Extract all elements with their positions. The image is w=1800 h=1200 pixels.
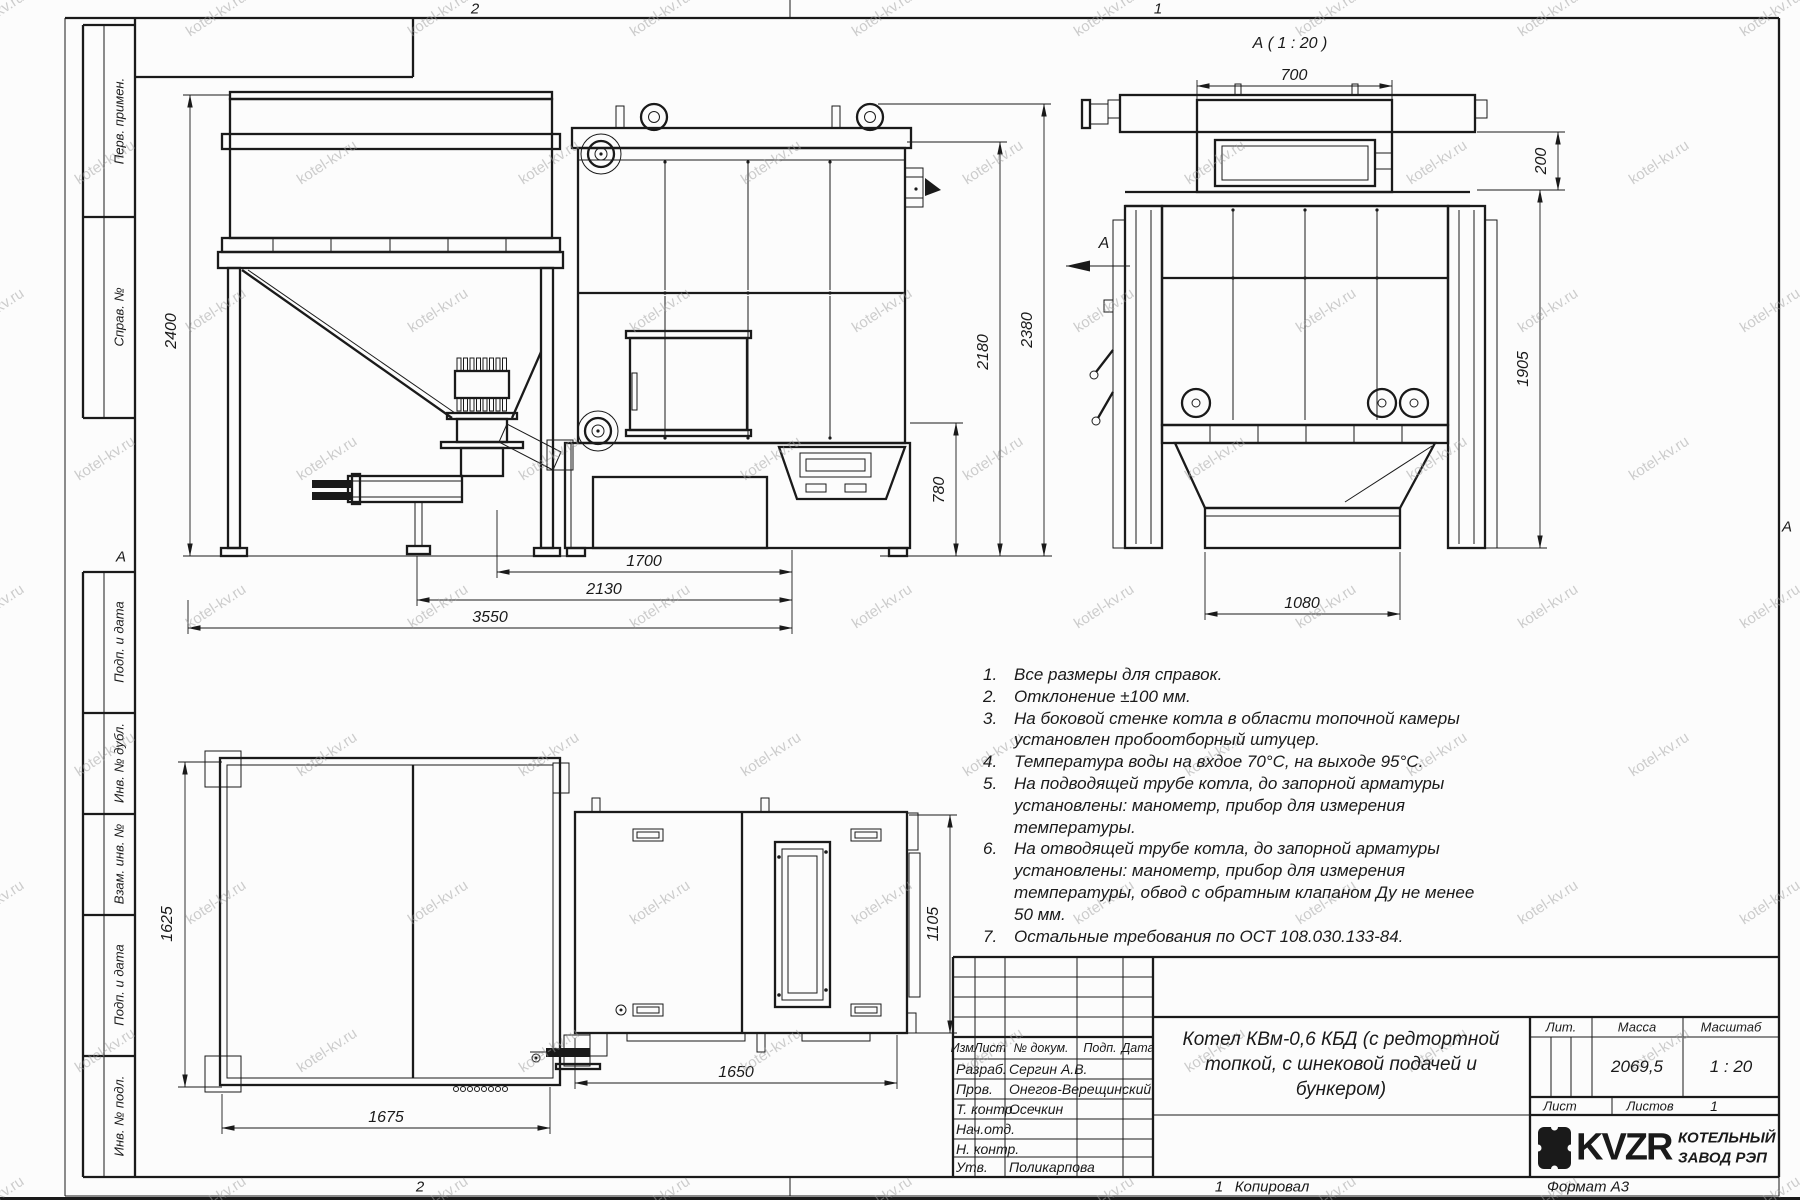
zone-letter-right: А (1782, 519, 1792, 536)
role-prov: Пров. (956, 1081, 993, 1097)
note-item: 2.Отклонение ±100 мм. (983, 686, 1475, 708)
note-number: 4. (983, 751, 1014, 773)
sheet-label: Лист (1543, 1099, 1576, 1114)
note-number: 5. (983, 773, 1014, 838)
note-text: На боковой стенке котла в области топочн… (1014, 708, 1475, 752)
note-item: 5.На подводящей трубе котла, до запорной… (983, 773, 1475, 838)
mass-value: 2069,5 (1611, 1057, 1663, 1077)
note-text: Отклонение ±100 мм. (1014, 686, 1475, 708)
name-prov: Онегов-Верещинский (1009, 1081, 1151, 1097)
note-text: Остальные требования по ОСТ 108.030.133-… (1014, 926, 1475, 948)
note-item: 1.Все размеры для справок. (983, 664, 1475, 686)
side-label-podp-data-2: Подп. и дата (112, 944, 127, 1025)
note-number: 7. (983, 926, 1014, 948)
rev-header-list: Лист (974, 1041, 1006, 1055)
mass-label: Масса (1618, 1020, 1656, 1035)
role-utv: Утв. (956, 1159, 988, 1175)
format-label: Формат А3 (1547, 1179, 1629, 1196)
zone-letter-left: А (116, 549, 126, 566)
company-name-line2: ЗАВОД РЭП (1678, 1150, 1767, 1167)
role-tkontr: Т. контр. (956, 1101, 1016, 1117)
note-number: 6. (983, 838, 1014, 925)
role-razrab: Разраб. (956, 1061, 1007, 1077)
side-label-inv-dubl: Инв. № дубл. (112, 723, 127, 803)
lit-label: Лит. (1546, 1020, 1576, 1035)
scale-label: Масштаб (1701, 1020, 1762, 1035)
doc-title-line3: бункером) (1296, 1079, 1386, 1101)
notes-list: 1.Все размеры для справок. 2.Отклонение … (983, 664, 1475, 947)
note-text: Температура воды на вхдое 70°С, на выход… (1014, 751, 1475, 773)
copied-label: Копировал (1235, 1179, 1310, 1196)
company-logo-text: KVZR (1576, 1127, 1671, 1170)
side-label-vzam-inv: Взам. инв. № (112, 824, 127, 904)
doc-title-line2: топкой, с шнековой подачей и (1205, 1054, 1477, 1076)
side-label-podp-data-1: Подп. и дата (112, 601, 127, 682)
zone-number-bottom-left: 2 (416, 1179, 424, 1196)
note-text: Все размеры для справок. (1014, 664, 1475, 686)
company-name-line1: КОТЕЛЬНЫЙ (1678, 1130, 1776, 1147)
zone-number-top-left: 2 (471, 1, 479, 18)
role-nkontr: Н. контр. (956, 1141, 1019, 1157)
note-item: 4.Температура воды на вхдое 70°С, на вых… (983, 751, 1475, 773)
rev-header-data: Дата (1122, 1041, 1155, 1055)
name-razrab: Сергин А.В. (1009, 1061, 1087, 1077)
rev-header-doc: № докум. (1013, 1041, 1068, 1055)
role-nachotd: Нач.отд. (956, 1121, 1015, 1137)
zone-number-bottom-right: 1 (1215, 1179, 1223, 1196)
sheets-value: 1 (1710, 1098, 1718, 1114)
sheets-label: Листов (1626, 1099, 1673, 1114)
scale-value: 1 : 20 (1710, 1057, 1753, 1077)
note-number: 1. (983, 664, 1014, 686)
note-text: На отводящей трубе котла, до запорной ар… (1014, 838, 1475, 925)
note-item: 3.На боковой стенке котла в области топо… (983, 708, 1475, 752)
note-item: 6.На отводящей трубе котла, до запорной … (983, 838, 1475, 925)
side-label-sprav-no: Справ. № (112, 287, 127, 346)
zone-number-top-right: 1 (1154, 1, 1162, 18)
note-number: 2. (983, 686, 1014, 708)
side-label-perv-primen: Перв. примен. (112, 78, 127, 164)
name-utv: Поликарпова (1009, 1159, 1095, 1175)
note-number: 3. (983, 708, 1014, 752)
note-item: 7.Остальные требования по ОСТ 108.030.13… (983, 926, 1475, 948)
name-tkontr: Осечкин (1009, 1101, 1063, 1117)
drawing-sheet: А ( 1 : 20 ) (0, 0, 1800, 1200)
note-text: На подводящей трубе котла, до запорной а… (1014, 773, 1475, 838)
rev-header-podp: Подп. (1083, 1041, 1116, 1055)
side-label-inv-podl: Инв. № подл. (112, 1076, 127, 1157)
doc-title-line1: Котел КВм-0,6 КБД (с редтортной (1183, 1029, 1500, 1051)
